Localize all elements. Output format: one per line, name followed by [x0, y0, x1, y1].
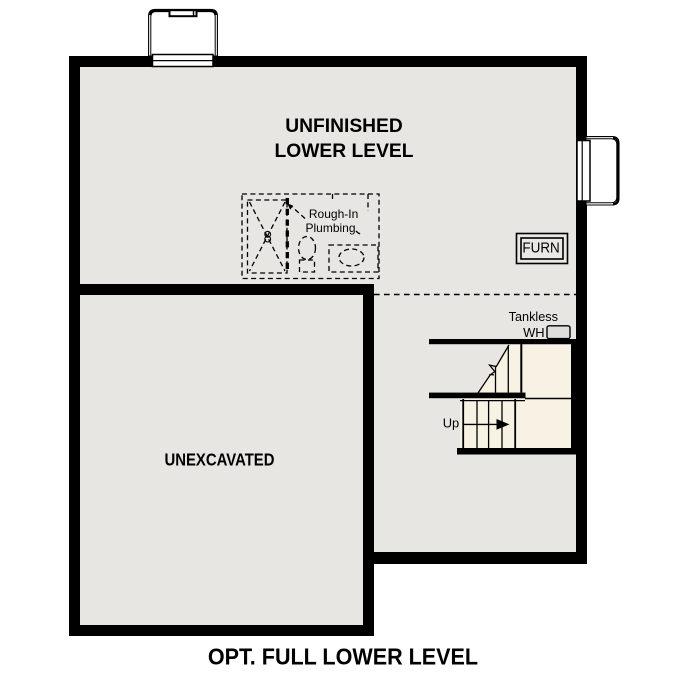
svg-text:Rough-In: Rough-In — [309, 207, 358, 221]
svg-text:UNEXCAVATED: UNEXCAVATED — [165, 449, 275, 469]
svg-text:Plumbing: Plumbing — [306, 221, 356, 235]
svg-text:LOWER LEVEL: LOWER LEVEL — [275, 140, 414, 162]
svg-text:OPT. FULL LOWER LEVEL: OPT. FULL LOWER LEVEL — [208, 644, 478, 670]
svg-text:WH: WH — [523, 325, 544, 340]
svg-text:Up: Up — [443, 415, 459, 430]
svg-text:Tankless: Tankless — [509, 309, 558, 324]
svg-text:FURN: FURN — [522, 241, 559, 257]
svg-text:UNFINISHED: UNFINISHED — [285, 115, 403, 137]
